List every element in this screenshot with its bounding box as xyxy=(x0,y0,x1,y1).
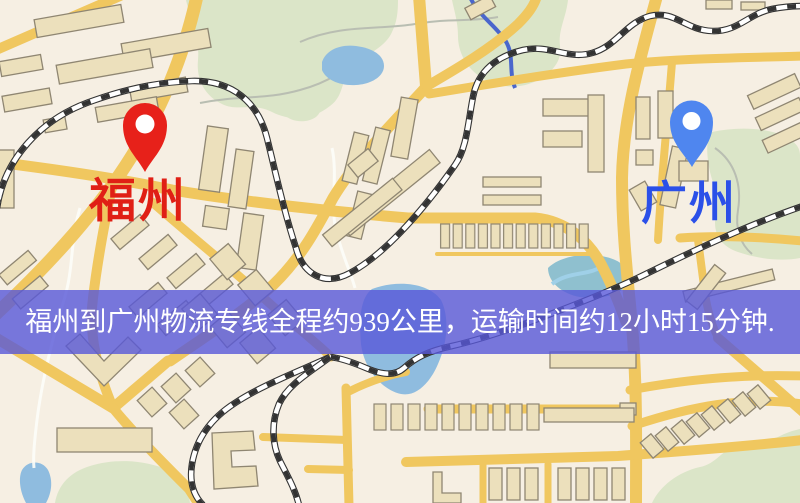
route-info-banner: 福州到广州物流专线全程约939公里，运输时间约12小时15分钟. xyxy=(0,290,800,354)
origin-label: 福州 xyxy=(89,179,187,226)
terrace-row-building xyxy=(439,222,589,250)
logistics-route-map: 福州 广州 福州到广州物流专线全程约939公里，运输时间约12小时15分钟. xyxy=(0,0,800,503)
destination-label: 广州 xyxy=(641,181,737,227)
terrace-row-building xyxy=(372,401,541,432)
map-background xyxy=(0,0,800,503)
route-info-text: 福州到广州物流专线全程约939公里，运输时间约12小时15分钟. xyxy=(25,307,774,337)
